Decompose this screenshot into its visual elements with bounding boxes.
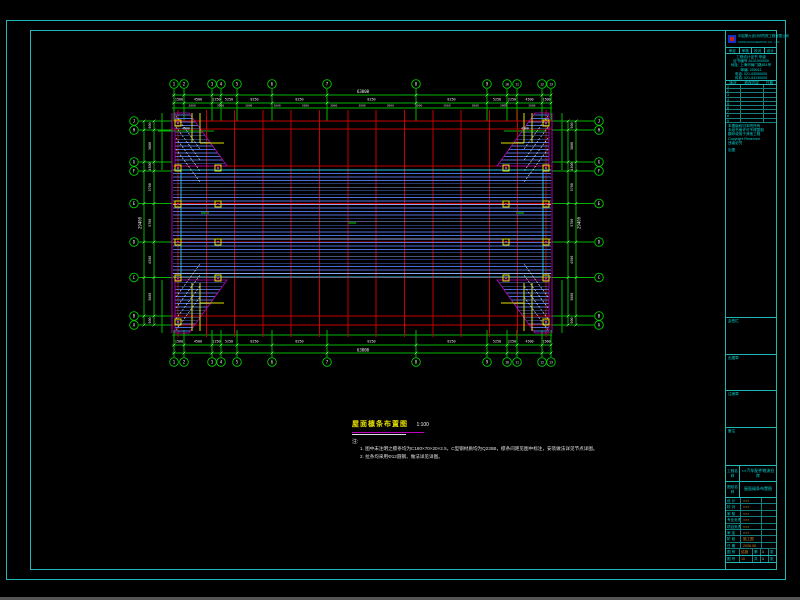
revision-cell bbox=[740, 102, 763, 105]
signature-extra bbox=[762, 517, 776, 522]
dimension-text: 4500 bbox=[525, 340, 533, 344]
company-name: 中船第九设计研究院工程有限公司 bbox=[738, 34, 789, 38]
dimension-text: 3600 bbox=[570, 293, 574, 301]
revision-cell: 3 bbox=[726, 93, 740, 96]
sheet-outer-frame bbox=[7, 21, 786, 580]
signature-rows: 设 计×××校 对×××审 核×××专业负责×××项目负责×××审 定×××阶 … bbox=[726, 497, 776, 549]
signature-value: ××× bbox=[741, 511, 762, 516]
sheet-extra-unit: 张 bbox=[768, 549, 776, 555]
sheet-extra-label: 第 bbox=[752, 549, 760, 555]
stamp-section: 注册章 bbox=[726, 390, 776, 396]
revision-cell bbox=[740, 119, 763, 122]
drawing-name-label: 图纸名称 bbox=[726, 482, 740, 497]
company-name-en: SNDRI ENGINEERING CO., LTD. bbox=[738, 40, 780, 44]
signature-label: 审 定 bbox=[726, 530, 741, 535]
column-core bbox=[505, 277, 507, 279]
dimension-text: 4500 bbox=[194, 98, 202, 102]
note-item: 2. 拉条均采用Φ12圆钢，做法详见详图。 bbox=[360, 453, 582, 461]
dimension-text: 5250 bbox=[225, 98, 233, 102]
column-core bbox=[545, 277, 547, 279]
column-core bbox=[217, 277, 219, 279]
signature-extra bbox=[762, 498, 776, 503]
outline-layer bbox=[172, 113, 552, 333]
signature-label: 阶 段 bbox=[726, 536, 741, 541]
sheet-number-row: 图 号10共1张 bbox=[726, 556, 776, 563]
signature-label: 日 期 bbox=[726, 543, 741, 548]
dimension-text: 900 bbox=[570, 122, 574, 128]
revision-cell bbox=[740, 93, 763, 96]
column-core bbox=[545, 321, 547, 323]
dimension-text: 8250 bbox=[250, 340, 258, 344]
column-core bbox=[177, 203, 179, 205]
brace-layer bbox=[176, 116, 548, 330]
dimension-text: 5250 bbox=[493, 98, 501, 102]
dimension-text: 63000 bbox=[357, 348, 370, 353]
revision-cell: 1 bbox=[726, 85, 740, 88]
dimension-text: 5700 bbox=[570, 183, 574, 191]
approval-cells: 审定审核校对设计 bbox=[726, 47, 776, 54]
dimension-text: 8250 bbox=[447, 98, 455, 102]
signature-value: ××× bbox=[741, 504, 762, 509]
revision-cell bbox=[763, 102, 776, 105]
column-core bbox=[505, 241, 507, 243]
dimension-text: 3000 bbox=[245, 104, 252, 108]
revision-cell bbox=[763, 89, 776, 92]
column-core bbox=[545, 167, 547, 169]
revision-cell: 5 bbox=[726, 102, 740, 105]
dimension-text: 4500 bbox=[148, 256, 152, 264]
drawing-scale: 1:100 bbox=[416, 422, 429, 428]
revision-row: 9 bbox=[726, 119, 776, 123]
dimension-text: 5700 bbox=[570, 219, 574, 227]
dimension-text: 5250 bbox=[225, 340, 233, 344]
company-info: 工程设计证书 甲级证书编号 A131000000地址: 上海市局门路851号邮编… bbox=[726, 55, 776, 80]
dimension-text: 4500 bbox=[194, 340, 202, 344]
dimension-text: 5250 bbox=[493, 340, 501, 344]
dimension-text: 3000 bbox=[302, 104, 309, 108]
drawing-name-value: 屋面檩条布置图 bbox=[740, 482, 776, 497]
signature-value: ××× bbox=[741, 517, 762, 522]
signature-extra bbox=[762, 530, 776, 535]
notes-list: 1. 图中未注明之檩条均为C180×70×20×2.5，C型钢材质均为Q235B… bbox=[352, 445, 582, 461]
grid-bubble-label: 10 bbox=[505, 361, 509, 365]
dimension-text: 900 bbox=[148, 122, 152, 128]
grid-bubble-label: 11 bbox=[515, 83, 519, 87]
dimension-text: 900 bbox=[570, 317, 574, 323]
dimension-text: 4500 bbox=[521, 127, 529, 131]
dimension-text: 3000 bbox=[189, 104, 196, 108]
project-name-row: 工程名称 ××汽车配件物流仓库 bbox=[726, 465, 776, 481]
grid-bubble-label: 10 bbox=[505, 83, 509, 87]
approval-cell: 审核 bbox=[739, 48, 752, 53]
dimension-text: 29400 bbox=[577, 216, 582, 229]
column-core bbox=[217, 203, 219, 205]
column-core bbox=[505, 167, 507, 169]
grid-bubble-label: 13 bbox=[549, 83, 553, 87]
project-name-label: 工程名称 bbox=[726, 466, 740, 481]
signature-value: 2008.06 bbox=[741, 543, 762, 548]
info-line: 地址: 上海市局门路851号 bbox=[726, 63, 776, 67]
signature-extra bbox=[762, 511, 776, 516]
sheet-number-row: 图 别结施第1张 bbox=[726, 549, 776, 556]
grid-bubble-label: 12 bbox=[540, 361, 544, 365]
grid-bubble-label: J bbox=[598, 119, 600, 124]
dimension-text: 3000 bbox=[472, 104, 479, 108]
column-core bbox=[177, 241, 179, 243]
sheet-extra-unit: 张 bbox=[768, 556, 776, 562]
dimension-text: 1500 bbox=[542, 340, 550, 344]
signature-extra bbox=[762, 536, 776, 541]
dimension-text: 1500 bbox=[542, 98, 550, 102]
dimension-text: 4500 bbox=[570, 162, 574, 170]
column-core bbox=[505, 203, 507, 205]
dimension-text: 2250 bbox=[508, 340, 516, 344]
sheet-inner-frame bbox=[31, 31, 777, 570]
title-underline-white bbox=[352, 434, 406, 435]
stamp-section-label: 注册章 bbox=[726, 391, 776, 396]
sheet-number-rows: 图 别结施第1张图 号10共1张 bbox=[726, 549, 776, 563]
dimension-text: 29400 bbox=[138, 216, 143, 229]
signature-value: 施工图 bbox=[741, 536, 762, 541]
signature-extra bbox=[762, 504, 776, 509]
drawing-title: 屋面檩条布置图 bbox=[352, 421, 408, 428]
revision-cell bbox=[740, 114, 763, 117]
sheet-extra-label: 共 bbox=[752, 556, 760, 562]
stamp-section-label: 出图章 bbox=[726, 355, 776, 360]
dimension-text: 5700 bbox=[148, 219, 152, 227]
dimension-text: 4500 bbox=[525, 98, 533, 102]
signature-value: ××× bbox=[741, 524, 762, 529]
signature-value: ××× bbox=[741, 530, 762, 535]
project-name-value: ××汽车配件物流仓库 bbox=[740, 466, 776, 481]
dimension-text: 4500 bbox=[148, 162, 152, 170]
dimension-text: 2250 bbox=[212, 340, 220, 344]
sheet-field-value: 结施 bbox=[739, 549, 752, 555]
dimension-text: 3600 bbox=[148, 293, 152, 301]
signature-extra bbox=[762, 524, 776, 529]
dimension-text: 8250 bbox=[367, 340, 375, 344]
signature-label: 项目负责 bbox=[726, 524, 741, 529]
dimension-text: 1500 bbox=[175, 340, 183, 344]
column-core bbox=[217, 241, 219, 243]
dimension-text: 3000 bbox=[273, 104, 280, 108]
signature-label: 专业负责 bbox=[726, 517, 741, 522]
column-core bbox=[545, 203, 547, 205]
revision-table: 123456789 bbox=[726, 85, 776, 123]
drawing-notes: 屋面檩条布置图 1:100 注: 1. 图中未注明之檩条均为C180×70×20… bbox=[352, 413, 582, 461]
title-block: 中船第九设计研究院工程有限公司 SNDRI ENGINEERING CO., L… bbox=[725, 30, 777, 570]
dimension-text: 8250 bbox=[295, 98, 303, 102]
dimension-text: 3000 bbox=[387, 104, 394, 108]
sheet-field-value: 10 bbox=[739, 556, 752, 562]
purlin-layer bbox=[173, 115, 551, 331]
revision-cell bbox=[763, 85, 776, 88]
cad-application-screen: 1122334455667788991010111112121313JJHHGG… bbox=[0, 0, 800, 600]
revision-cell: 9 bbox=[726, 119, 740, 122]
revision-cell bbox=[740, 98, 763, 101]
dimension-text: 3000 bbox=[415, 104, 422, 108]
sheet-extra-value: 1 bbox=[760, 556, 768, 562]
dimension-text: 3000 bbox=[330, 104, 337, 108]
stamp-section: 会签栏 bbox=[726, 317, 776, 323]
sheet-field-label: 图 号 bbox=[726, 556, 739, 562]
approval-cell: 审定 bbox=[726, 48, 739, 53]
dimension-text: 8250 bbox=[447, 340, 455, 344]
dimension-text: 3000 bbox=[358, 104, 365, 108]
revision-cell bbox=[740, 89, 763, 92]
dimension-text: 63000 bbox=[357, 89, 370, 94]
revision-cell bbox=[763, 119, 776, 122]
grid-bubble-label: 11 bbox=[515, 361, 519, 365]
revision-cell bbox=[740, 106, 763, 109]
issue-label: 出图 bbox=[728, 148, 735, 152]
column-core bbox=[177, 321, 179, 323]
notes-label: 注: bbox=[352, 438, 582, 445]
approval-cell: 校对 bbox=[751, 48, 764, 53]
revision-cell bbox=[740, 110, 763, 113]
stamp-section-label: 备注 bbox=[726, 428, 776, 433]
column-core bbox=[217, 167, 219, 169]
grid-bubble-label: 12 bbox=[540, 83, 544, 87]
dimension-text: 3600 bbox=[148, 142, 152, 150]
revision-cell bbox=[763, 93, 776, 96]
revision-cell: 4 bbox=[726, 98, 740, 101]
dimension-text: 900 bbox=[148, 317, 152, 323]
column-core bbox=[177, 167, 179, 169]
sheet-field-label: 图 别 bbox=[726, 549, 739, 555]
column-core bbox=[177, 122, 179, 124]
signature-label: 设 计 bbox=[726, 498, 741, 503]
dimension-text: 3000 bbox=[443, 104, 450, 108]
stamp-section: 出图章 bbox=[726, 354, 776, 360]
signature-value: ××× bbox=[741, 498, 762, 503]
dimension-text: 3000 bbox=[528, 104, 535, 108]
dimension-text: 3000 bbox=[217, 104, 224, 108]
sheet-extra-value: 1 bbox=[760, 549, 768, 555]
dimension-text: 2250 bbox=[212, 98, 220, 102]
revision-cell: 7 bbox=[726, 110, 740, 113]
revision-cell bbox=[763, 98, 776, 101]
signature-label: 审 核 bbox=[726, 511, 741, 516]
revision-cell bbox=[763, 114, 776, 117]
revision-cell bbox=[740, 85, 763, 88]
dimension-text: 8250 bbox=[367, 98, 375, 102]
frame-axis-layer bbox=[172, 110, 552, 337]
revision-cell: 2 bbox=[726, 89, 740, 92]
grid-bubble-label: J bbox=[133, 119, 135, 124]
signature-label: 校 对 bbox=[726, 504, 741, 509]
note-item: 1. 图中未注明之檩条均为C180×70×20×2.5，C型钢材质均为Q235B… bbox=[360, 445, 582, 453]
company-logo bbox=[728, 35, 736, 43]
title-underline-magenta bbox=[352, 432, 424, 433]
revision-cell bbox=[763, 106, 776, 109]
dimension-text: 2250 bbox=[508, 98, 516, 102]
revision-cell: 6 bbox=[726, 106, 740, 109]
column-core bbox=[545, 241, 547, 243]
revision-cell bbox=[763, 110, 776, 113]
dimension-text: 1500 bbox=[175, 98, 183, 102]
dimension-text: 5700 bbox=[148, 183, 152, 191]
dimension-text: 4500 bbox=[182, 127, 190, 131]
dimension-text: 3600 bbox=[570, 142, 574, 150]
copyright-line: 违者必究 bbox=[728, 141, 776, 145]
stamp-section-label: 会签栏 bbox=[726, 318, 776, 323]
signature-extra bbox=[762, 543, 776, 548]
dimension-text: 8250 bbox=[295, 340, 303, 344]
drawing-name-row: 图纸名称 屋面檩条布置图 bbox=[726, 481, 776, 497]
approval-cell: 设计 bbox=[764, 48, 777, 53]
revision-cell: 8 bbox=[726, 114, 740, 117]
dimension-text: 8250 bbox=[250, 98, 258, 102]
column-core bbox=[177, 277, 179, 279]
copyright-lines: 本图版权归本院所有未经书面许可不得复制翻印或用于其他工程Copyright Re… bbox=[728, 124, 776, 145]
grid-bubble-label: 13 bbox=[549, 361, 553, 365]
column-core bbox=[545, 122, 547, 124]
stamp-section: 备注 bbox=[726, 427, 776, 433]
cad-viewport[interactable]: 1122334455667788991010111112121313JJHHGG… bbox=[0, 0, 800, 600]
dimension-text: 3000 bbox=[500, 104, 507, 108]
dimension-text: 4500 bbox=[570, 256, 574, 264]
